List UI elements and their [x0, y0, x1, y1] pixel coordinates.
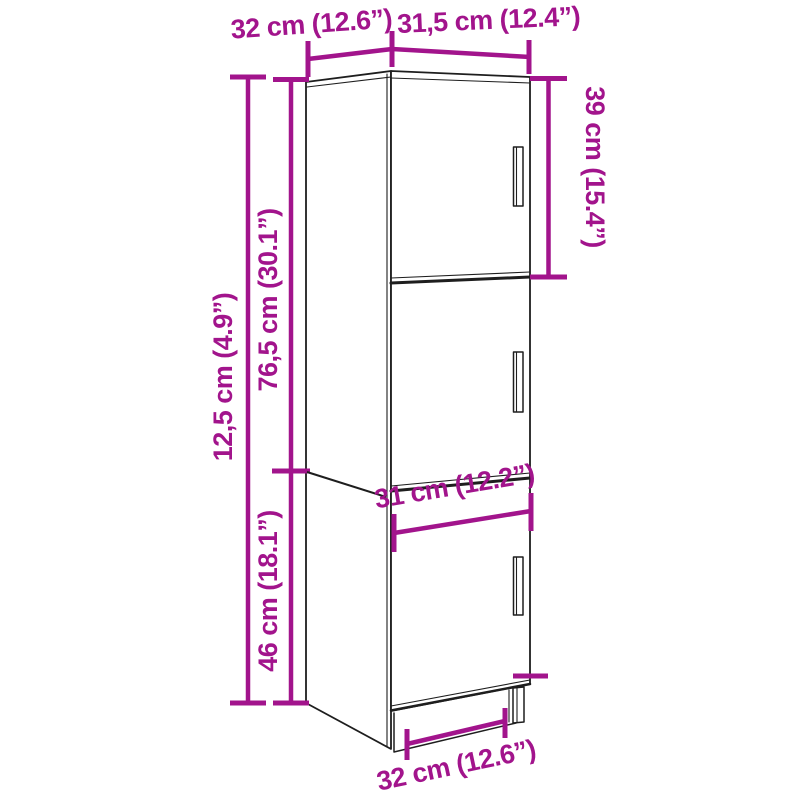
door-handle-top — [514, 147, 524, 206]
door-handle-bottom — [514, 557, 524, 615]
top-width-label: 32 cm (12.6”) — [230, 3, 393, 44]
dimension-diagram: 32 cm (12.6”) 31,5 cm (12.4”) 39 cm (15.… — [0, 0, 800, 800]
top-depth-label: 31,5 cm (12.4”) — [396, 1, 580, 39]
side-panel — [306, 71, 391, 749]
left-outer-label: 12,5 cm (4.9”) — [208, 293, 238, 462]
left-upper-label: 76,5 cm (30.1”) — [253, 208, 283, 391]
right-section-label: 39 cm (15.4”) — [580, 86, 610, 248]
right-leg — [513, 687, 524, 723]
door-handle-middle — [514, 352, 524, 412]
bottom-width-label: 32 cm (12.6”) — [374, 734, 538, 797]
right-dimension-line — [530, 79, 567, 278]
cabinet-drawing: 32 cm (12.6”) 31,5 cm (12.4”) 39 cm (15.… — [0, 0, 800, 800]
cabinet — [306, 71, 530, 752]
left-lower-label: 46 cm (18.1”) — [253, 510, 283, 672]
front-panel — [391, 71, 530, 711]
